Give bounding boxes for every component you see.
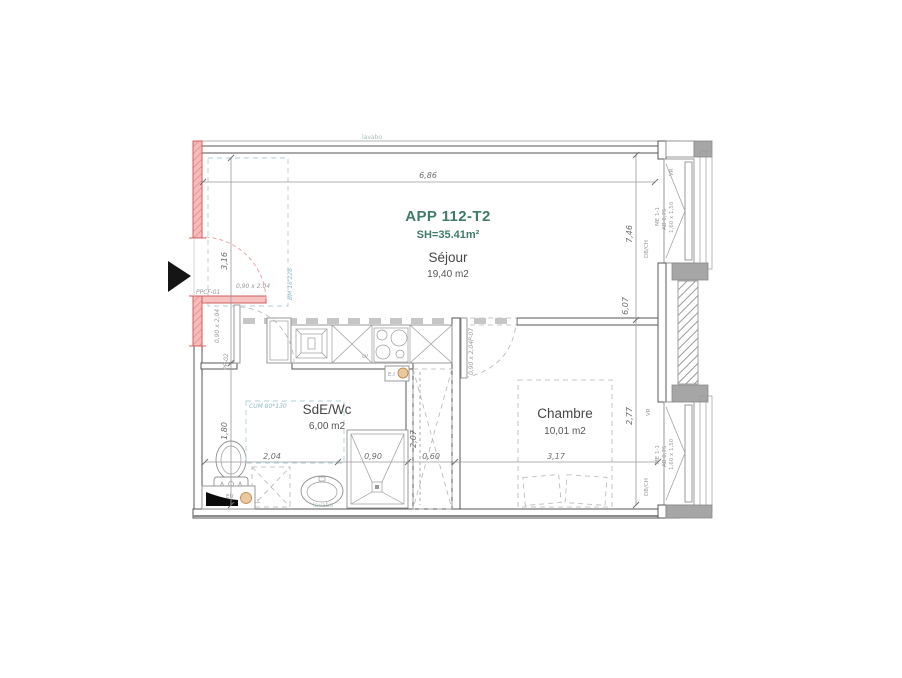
- sejour-name: Séjour: [428, 250, 468, 265]
- gray-block-mid-top: [672, 263, 708, 280]
- waste-duct: EU: [202, 486, 255, 509]
- window-lower-glazing: [685, 405, 692, 502]
- window-upper-sill: AB 0,75: [662, 208, 668, 230]
- floor-plan-page: LV E.I: [0, 0, 902, 678]
- bedroom-door-leaf: [461, 318, 467, 378]
- dishwasher-label: LV: [362, 354, 368, 360]
- bedroom-door-size: 0,90 x 2,04: [468, 341, 475, 375]
- room-labels: APP 112-T2 SH=35.41m² Séjour 19,40 m2 Sd…: [303, 134, 593, 437]
- duct-circle-icon: [398, 368, 408, 378]
- bedroom-door: P-07 0,90 x 2,04: [461, 318, 516, 378]
- bed-pillow-left: [523, 474, 561, 505]
- entry-door-leaf: [202, 296, 266, 303]
- lavabo-top-label: lavabo: [362, 134, 382, 141]
- dim-right-chambre: 2,77: [625, 406, 634, 425]
- red-wall-upper: [193, 141, 202, 238]
- bed-outline: [518, 380, 612, 507]
- cum-zone-label: CUM 80*130: [249, 403, 287, 410]
- entry-zone: BM 18'228 PPCF-01 0,90 x 2,04: [196, 158, 294, 306]
- entry-fire-walls: [189, 141, 206, 346]
- bed-pillow-right: [565, 475, 607, 506]
- window-upper-glazing: [685, 162, 692, 260]
- window-upper-shutter: VR: [669, 168, 675, 176]
- right-wall-mid: [658, 263, 666, 402]
- dim-right-total: 7,46: [625, 225, 634, 243]
- eu-label: EU: [226, 494, 234, 500]
- dim-bath-height: 1,80: [220, 422, 229, 440]
- dim-top-label: 6,86: [419, 171, 437, 180]
- shower-drain-inner: [375, 485, 379, 489]
- washbasin: lavabo: [301, 476, 343, 509]
- dim-bottom-chambre: 3,17: [547, 452, 566, 461]
- washing-machine: LL: [252, 467, 290, 507]
- fire-safety-box: E.I: [385, 366, 409, 381]
- window-lower-sill: AB 0,75: [662, 445, 668, 467]
- apartment-title: APP 112-T2: [405, 208, 490, 225]
- facade-frame-top: [666, 141, 694, 157]
- chambre-west-wall: [452, 318, 460, 509]
- window-upper-glazing: DB/CH: [644, 240, 650, 258]
- duct-zone: [413, 369, 452, 509]
- gray-block-bottom: [666, 505, 712, 518]
- entrance-arrow-icon: [168, 261, 191, 292]
- kitchen-tall-unit: [267, 318, 291, 363]
- dim-right-sejour: 6,07: [621, 296, 630, 315]
- dim-bottom-bath: 2,04: [263, 452, 281, 461]
- entry-door-ref: PPCF-01: [196, 289, 220, 296]
- sejour-area: 19,40 m2: [427, 269, 469, 280]
- window-upper-ref: ME 1-1: [655, 207, 661, 226]
- gray-block-top: [694, 141, 712, 157]
- kitchen-counter: LV: [267, 318, 452, 363]
- window-lower-ref: ME 1-1: [655, 445, 661, 464]
- dim-entry-height: 3,16: [220, 252, 229, 270]
- window-lower-shutter: VR: [646, 408, 652, 416]
- eu-pipe-icon: [241, 493, 252, 504]
- floor-plan-drawing: LV E.I: [0, 0, 902, 678]
- bath-top-wall-left: [201, 363, 237, 369]
- window-lower-glazing: DB/CH: [644, 478, 650, 496]
- red-wall-lower: [193, 296, 202, 346]
- shower: [347, 430, 408, 508]
- sde-name: SdE/Wc: [303, 402, 352, 417]
- party-wall-hatched: [678, 281, 698, 384]
- window-lower-size: 1,60 x 1,50: [669, 438, 675, 470]
- top-wall: [196, 146, 680, 153]
- dim-duct-height: 2,07: [409, 429, 418, 448]
- sde-area: 6,00 m2: [309, 421, 346, 432]
- right-wall-top: [658, 141, 666, 159]
- bathroom-door-ref: PP-02: [223, 353, 230, 370]
- gray-block-mid-bottom: [672, 385, 708, 402]
- ei-label: E.I: [388, 372, 395, 378]
- bathroom-door-leaf: [234, 305, 240, 363]
- chambre-area: 10,01 m2: [544, 426, 586, 437]
- chambre-name: Chambre: [537, 406, 593, 421]
- dim-bottom-shower: 0,90: [364, 452, 382, 461]
- dim-bottom-duct: 0,60: [422, 452, 440, 461]
- window-upper-size: 1,60 x 1,50: [669, 201, 675, 233]
- shower-outer: [347, 430, 408, 508]
- bedroom-door-ref: P-07: [468, 328, 475, 341]
- apartment-surface: SH=35.41m²: [417, 229, 480, 241]
- washbasin-label: lavabo: [313, 502, 333, 509]
- bathroom-door-size: 0,90 x 2,04: [214, 309, 221, 343]
- bed-furniture: [518, 380, 612, 507]
- right-wall-bottom: [658, 505, 666, 518]
- entry-door-size: 0,90 x 2,04: [236, 283, 270, 290]
- left-wall-lower: [194, 346, 202, 509]
- bm-zone-label: BM 18'228: [287, 268, 294, 300]
